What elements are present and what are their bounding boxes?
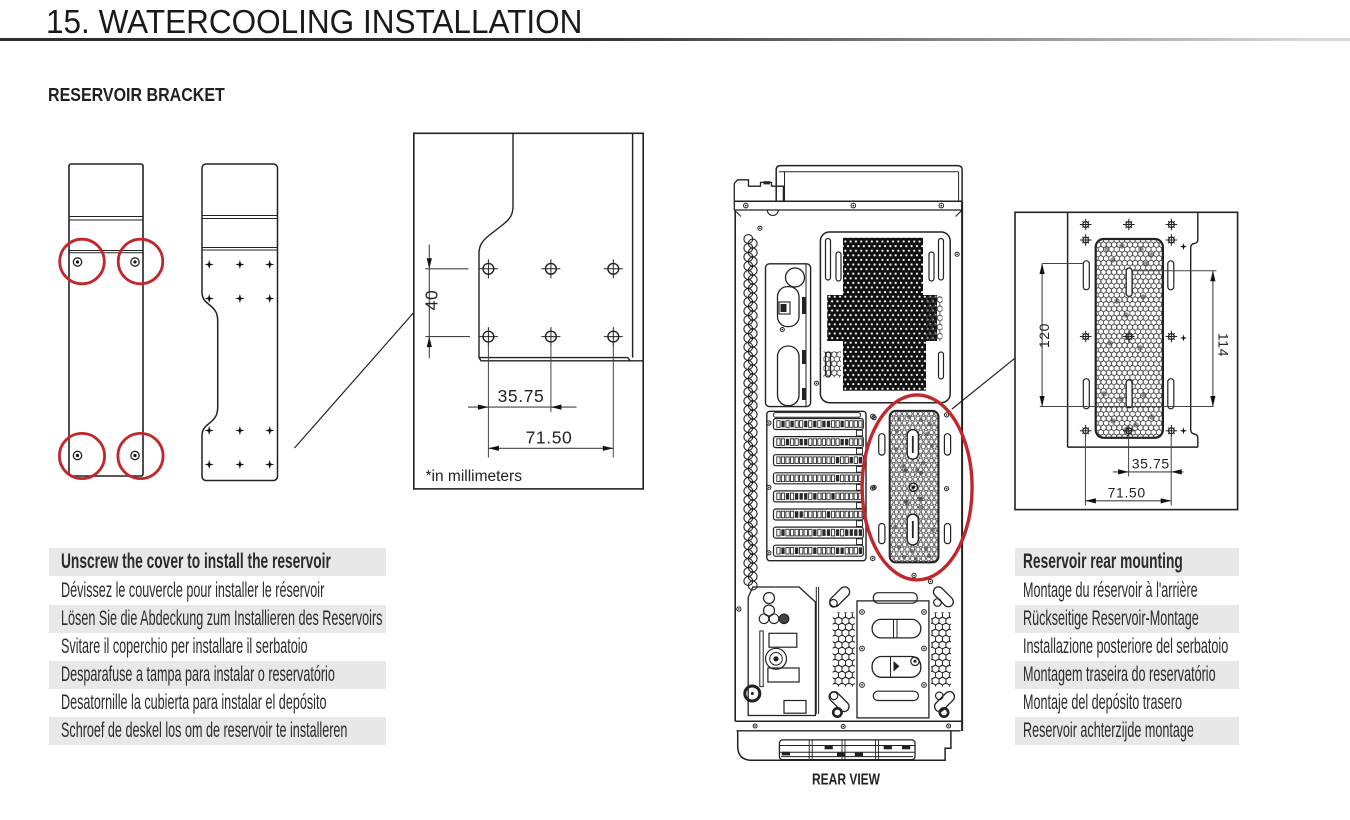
svg-text:40: 40: [422, 290, 442, 311]
svg-text:35.75: 35.75: [498, 386, 545, 406]
svg-text:35.75: 35.75: [1132, 455, 1170, 471]
svg-text:71.50: 71.50: [526, 427, 573, 447]
svg-text:71.50: 71.50: [1108, 484, 1146, 500]
svg-text:120: 120: [1036, 323, 1052, 348]
svg-text:114: 114: [1215, 333, 1231, 357]
svg-text:*in millimeters: *in millimeters: [426, 468, 523, 485]
svg-text:REAR VIEW: REAR VIEW: [812, 772, 881, 789]
